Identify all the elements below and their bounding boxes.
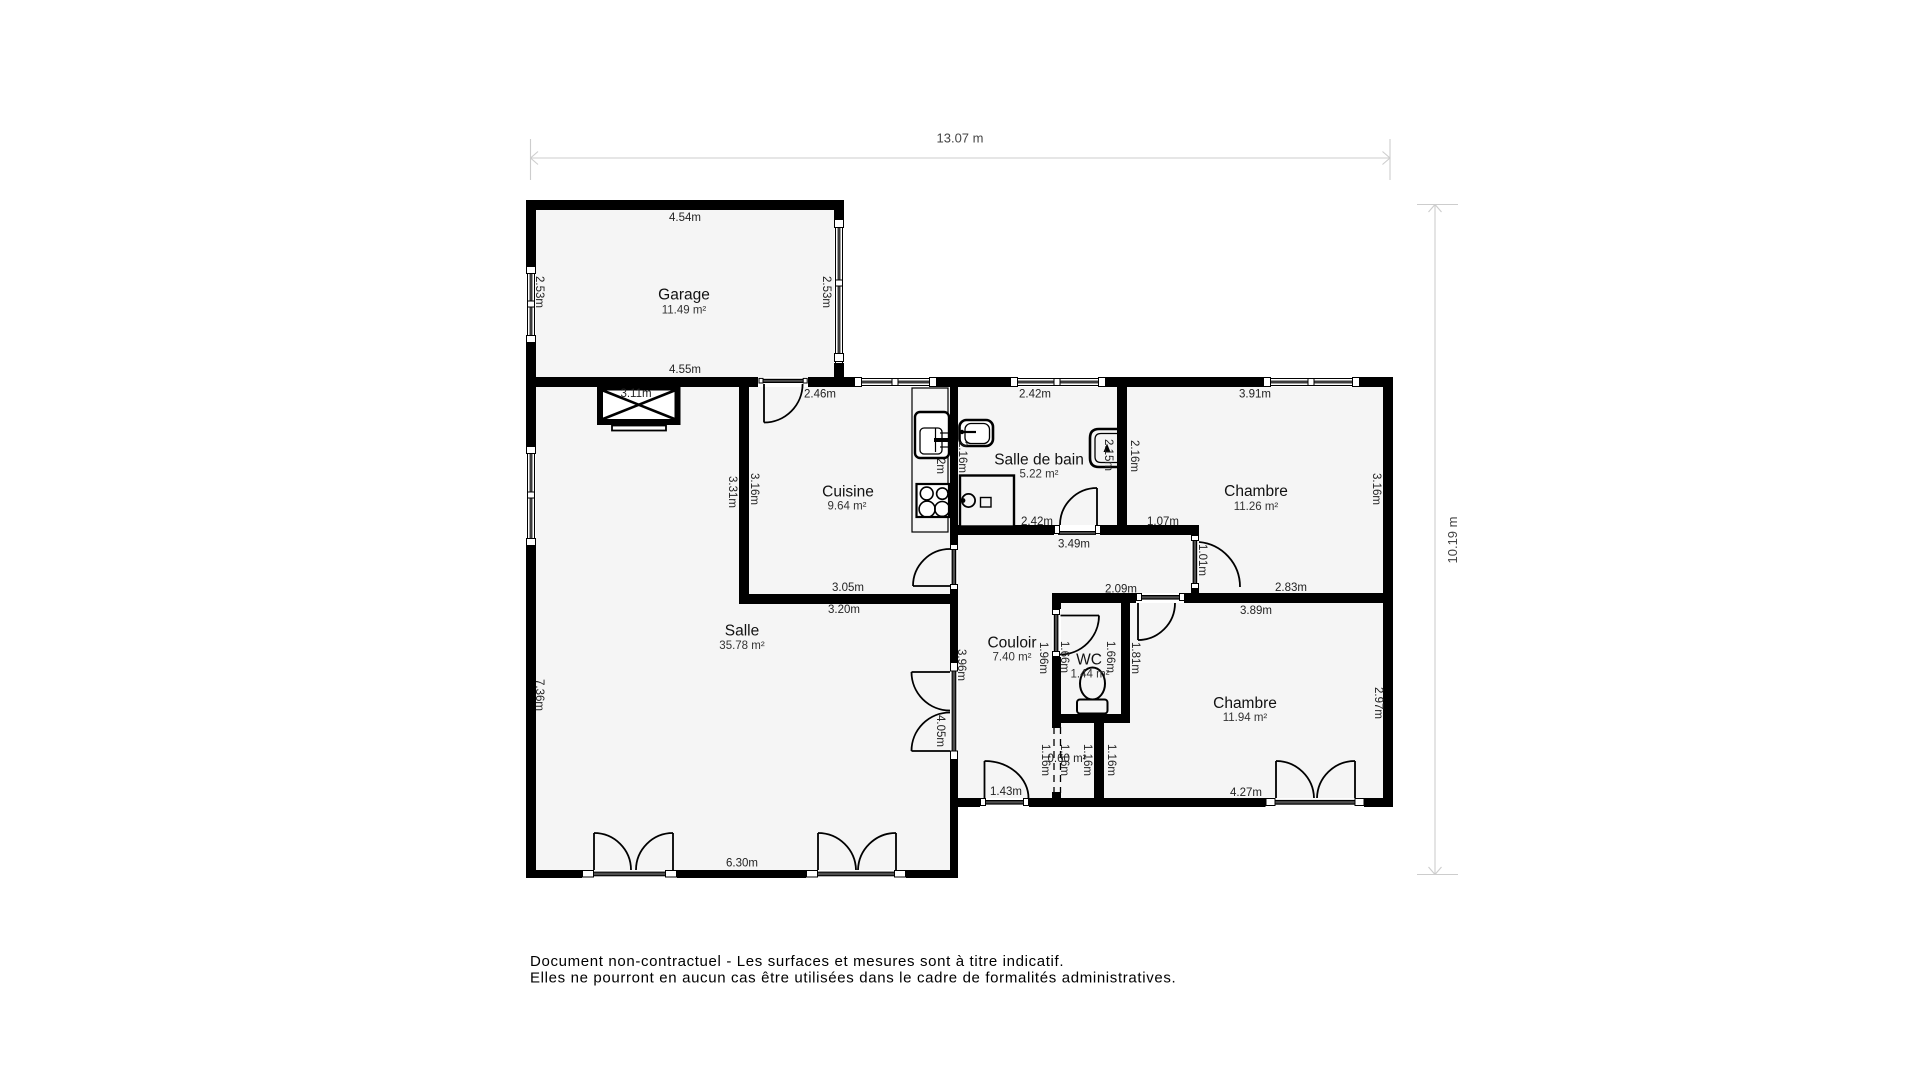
svg-text:3.16m: 3.16m bbox=[748, 473, 760, 505]
svg-text:Salle: Salle bbox=[725, 623, 759, 640]
svg-text:10.19 m: 10.19 m bbox=[1445, 517, 1460, 564]
svg-text:1.81m: 1.81m bbox=[1129, 642, 1141, 674]
svg-text:1.44 m²: 1.44 m² bbox=[1071, 669, 1110, 681]
svg-text:2.42m: 2.42m bbox=[1021, 516, 1053, 528]
svg-text:5.22 m²: 5.22 m² bbox=[1020, 469, 1059, 481]
svg-text:3.11m: 3.11m bbox=[620, 388, 651, 400]
svg-text:7.36m: 7.36m bbox=[533, 679, 545, 711]
svg-text:2.16m: 2.16m bbox=[956, 441, 968, 473]
svg-text:3.49m: 3.49m bbox=[1058, 539, 1090, 551]
svg-text:3.91m: 3.91m bbox=[1239, 389, 1271, 401]
svg-text:Couloir: Couloir bbox=[987, 635, 1036, 652]
svg-text:11.94 m²: 11.94 m² bbox=[1223, 712, 1268, 724]
svg-text:9.64 m²: 9.64 m² bbox=[828, 501, 867, 513]
svg-text:3.05m: 3.05m bbox=[832, 582, 864, 594]
svg-text:4.54m: 4.54m bbox=[669, 212, 701, 224]
svg-text:2.97m: 2.97m bbox=[1372, 687, 1384, 719]
svg-text:1.01m: 1.01m bbox=[1196, 544, 1208, 576]
svg-text:2.83m: 2.83m bbox=[1275, 582, 1307, 594]
svg-text:Chambre: Chambre bbox=[1213, 695, 1277, 712]
svg-text:2.53m: 2.53m bbox=[533, 276, 545, 308]
svg-text:3.16m: 3.16m bbox=[1370, 473, 1382, 505]
svg-text:Salle de bain: Salle de bain bbox=[994, 452, 1084, 469]
svg-text:6.30m: 6.30m bbox=[726, 858, 758, 870]
svg-text:3.96m: 3.96m bbox=[955, 649, 967, 681]
svg-text:13.07 m: 13.07 m bbox=[937, 131, 984, 146]
svg-text:4.05m: 4.05m bbox=[934, 715, 946, 747]
svg-text:4.55m: 4.55m bbox=[669, 364, 701, 376]
svg-text:2.53m: 2.53m bbox=[820, 276, 832, 308]
svg-text:1.43m: 1.43m bbox=[990, 786, 1022, 798]
svg-text:1.66m: 1.66m bbox=[1104, 641, 1116, 673]
svg-text:11.26 m²: 11.26 m² bbox=[1234, 501, 1279, 513]
svg-text:2.46m: 2.46m bbox=[804, 389, 836, 401]
svg-text:Cuisine: Cuisine bbox=[822, 484, 874, 501]
svg-text:Chambre: Chambre bbox=[1224, 483, 1288, 500]
svg-text:3.20m: 3.20m bbox=[828, 604, 860, 616]
svg-text:2.09m: 2.09m bbox=[1105, 584, 1137, 596]
svg-text:2.42m: 2.42m bbox=[1019, 389, 1051, 401]
svg-text:35.78 m²: 35.78 m² bbox=[719, 640, 765, 652]
svg-text:7.40 m²: 7.40 m² bbox=[993, 652, 1032, 664]
svg-text:Elles ne pourront en aucun cas: Elles ne pourront en aucun cas être util… bbox=[530, 970, 1176, 987]
svg-text:4.27m: 4.27m bbox=[1230, 787, 1262, 799]
svg-text:1.66m: 1.66m bbox=[1058, 641, 1070, 673]
svg-text:2.15m: 2.15m bbox=[1102, 439, 1114, 471]
svg-text:0.60 m²: 0.60 m² bbox=[1048, 753, 1087, 765]
svg-text:3.89m: 3.89m bbox=[1240, 605, 1272, 617]
svg-text:11.49 m²: 11.49 m² bbox=[662, 305, 707, 317]
svg-text:1.07m: 1.07m bbox=[1147, 516, 1179, 528]
svg-text:3.31m: 3.31m bbox=[726, 476, 738, 508]
svg-text:2.16m: 2.16m bbox=[1128, 440, 1140, 472]
svg-text:WC: WC bbox=[1076, 652, 1102, 669]
svg-text:Garage: Garage bbox=[658, 287, 710, 304]
svg-text:1.16m: 1.16m bbox=[1081, 744, 1093, 776]
svg-text:Document non-contractuel - Les: Document non-contractuel - Les surfaces … bbox=[530, 953, 1064, 970]
svg-text:1.96m: 1.96m bbox=[1037, 642, 1049, 674]
svg-text:1.16m: 1.16m bbox=[1105, 744, 1117, 776]
